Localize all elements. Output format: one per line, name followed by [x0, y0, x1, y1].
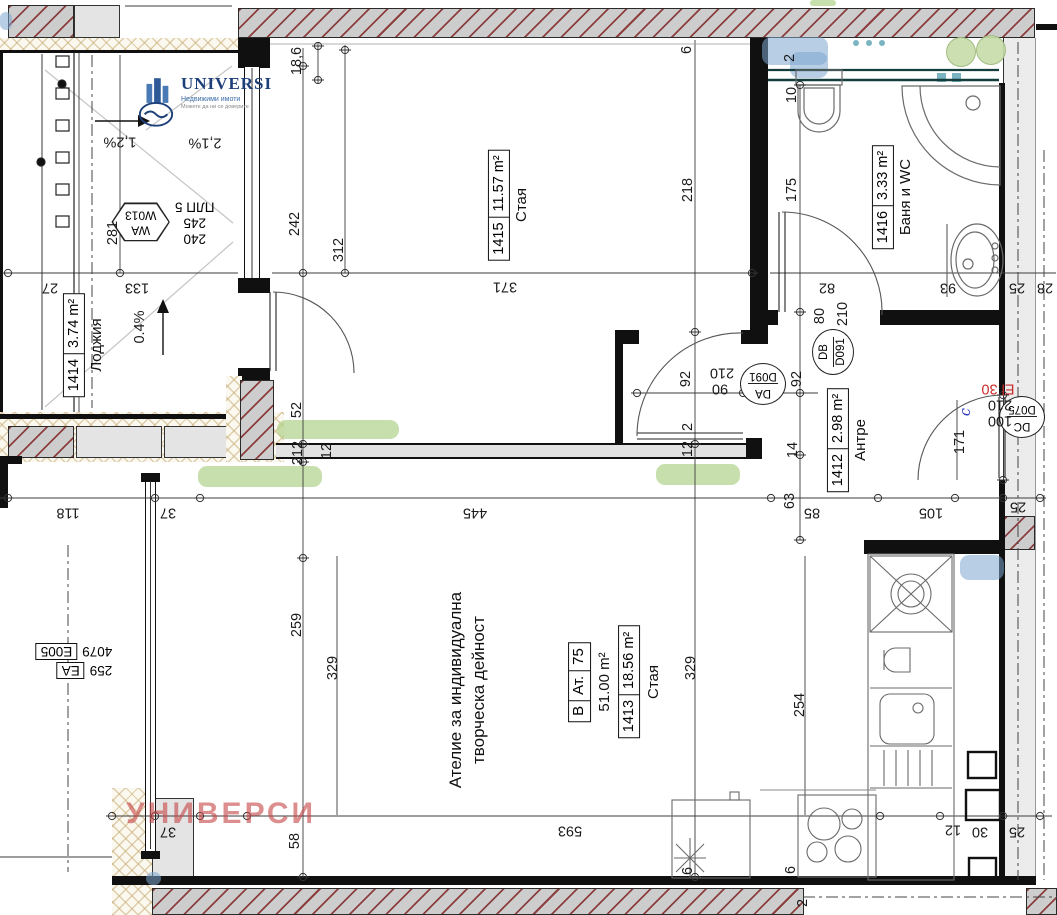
dim-label: 281	[106, 221, 121, 245]
dim-label: 30	[972, 824, 988, 839]
room-name: Стая	[513, 188, 530, 222]
room-id: 1415	[489, 217, 509, 259]
dim-label: 25	[1009, 824, 1025, 839]
dim-label: 329	[326, 656, 341, 680]
dim-label: 218	[681, 178, 696, 202]
dim-label: 6	[681, 867, 696, 875]
room-area: 3.33 m²	[873, 146, 893, 206]
room-id: 1412	[828, 449, 848, 491]
dim-label: 58	[288, 833, 303, 849]
room-label-1416: 14163.33 m²Баня и WC	[872, 145, 914, 249]
dim-label: 118	[56, 505, 79, 520]
room-area: 3.74 m²	[64, 294, 84, 354]
room-name: Антре	[852, 419, 869, 461]
dim-label: 27	[42, 280, 58, 295]
dim-label: 210	[988, 397, 1012, 412]
dim-label: 171	[953, 430, 968, 454]
room-label-1412: 14122.98 m²Антре	[827, 388, 869, 492]
dim-label: 63	[783, 493, 798, 509]
labels-layer: 272811331,2%2,1%0.4%24231237121818,66210…	[0, 0, 1057, 915]
room-box: 14143.74 m²	[63, 293, 85, 397]
dim-label: 85	[804, 505, 820, 520]
dim-label: 329	[684, 656, 699, 680]
dim-label: 28	[1037, 280, 1053, 295]
dim-label: 37	[160, 824, 176, 839]
dim-label: 312	[332, 238, 347, 262]
dim-label: 2	[681, 423, 696, 431]
dim-label: 1,2%	[103, 134, 136, 149]
dim-label: 259	[290, 613, 305, 637]
dim-label: 100	[988, 413, 1012, 428]
room-name: Баня и WC	[897, 159, 914, 235]
dim-label: 90	[712, 381, 728, 396]
floor-plan: UNIVERSI Недвижими имоти Можете да ни се…	[0, 0, 1057, 915]
dim-label: 254	[793, 693, 808, 717]
room-area: 2.98 m²	[828, 389, 848, 449]
dim-label: 25	[1009, 280, 1025, 295]
dim-label: c	[959, 408, 974, 416]
dim-label: 242	[288, 212, 303, 236]
dim-label: 12	[320, 443, 335, 459]
dim-label: 593	[558, 823, 582, 838]
dim-label: El 30	[981, 381, 1014, 396]
dim-label: 2	[783, 54, 798, 62]
dim-label: 93	[940, 280, 956, 295]
dim-label: 105	[919, 505, 943, 520]
dim-label: 92	[679, 371, 694, 387]
dim-label: 6	[784, 866, 799, 874]
room-box: 14163.33 m²	[872, 145, 894, 249]
dim-label: 12	[681, 441, 696, 457]
dim-label: 0.4%	[133, 310, 148, 343]
room-name: Лоджия	[88, 318, 105, 371]
dim-label: 6	[680, 46, 695, 54]
room-box: 14122.98 m²	[827, 388, 849, 492]
dim-label: 210	[836, 302, 851, 326]
dim-label: 12	[945, 822, 961, 837]
room-label-1414: 14143.74 m²Лоджия	[63, 293, 105, 397]
room-id: 1416	[873, 206, 893, 248]
dim-label: 37	[160, 505, 176, 520]
dim-label: 52	[290, 402, 305, 418]
dim-label: 175	[785, 178, 800, 202]
dim-label: 2,1%	[188, 135, 221, 150]
dim-label: 25	[1010, 499, 1026, 514]
dim-label: 445	[463, 505, 487, 520]
dim-label: 10	[785, 87, 800, 103]
dim-label: 371	[493, 279, 517, 294]
dim-label: 212	[291, 441, 306, 465]
room-area: 11.57 m²	[489, 150, 509, 217]
dim-label: 210	[710, 365, 734, 380]
dim-label: 82	[819, 280, 835, 295]
room-id: 1414	[64, 354, 84, 396]
room-box: 141511.57 m²	[488, 149, 510, 260]
dim-label: 92	[790, 371, 805, 387]
room-label-1415: 141511.57 m²Стая	[488, 149, 530, 260]
dim-label: 18,6	[290, 47, 305, 75]
dim-label: 2	[796, 899, 811, 907]
dim-label: 133	[125, 280, 149, 295]
dim-label: 14	[786, 442, 801, 458]
dim-label: 80	[813, 308, 828, 324]
